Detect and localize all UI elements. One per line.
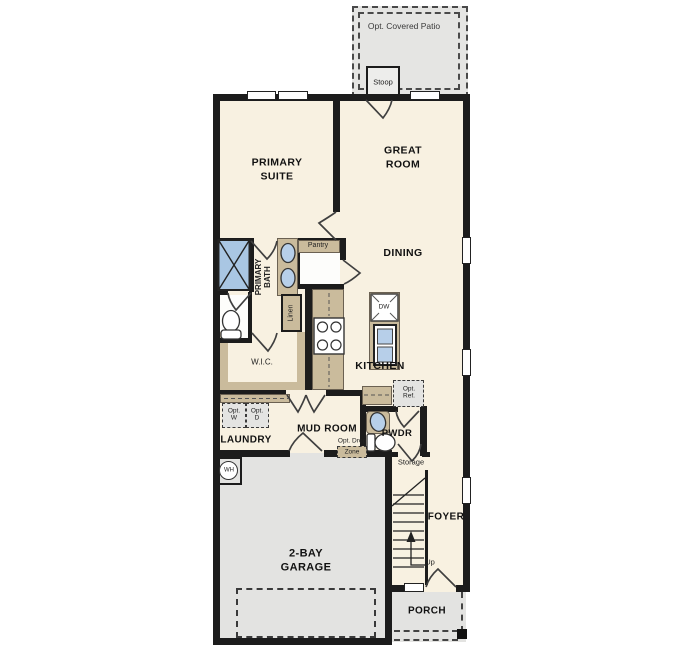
wic-label: W.I.C. [251,357,273,366]
opt-covered-patio-label: Opt. Covered Patio [368,22,440,32]
wall [425,470,428,585]
window [247,91,276,100]
porch-label: PORCH [408,605,446,618]
wall [456,585,470,592]
water-heater-label: WH [224,468,234,475]
pantry-label: Pantry [308,242,328,250]
porch-edge-right [461,592,463,632]
opt-drop-label: Opt. Drop [338,437,366,444]
great-room-label: GREAT ROOM [384,144,422,171]
storage-label: Storage [398,459,424,468]
opt-washer-label: Opt. W [228,408,240,423]
wall [422,452,430,457]
window [462,477,471,504]
pwdr-label: PWDR [382,428,413,440]
mud-room-label: MUD ROOM [297,423,357,436]
linen-label: Linen [288,304,295,321]
foyer-label: FOYER [428,511,464,524]
wall [216,290,228,295]
pantry-floor [298,253,340,284]
wall [366,452,398,457]
porch-edge-bottom-2 [394,639,458,641]
up-label: Up [425,559,435,568]
wall [248,292,252,338]
primary-suite-label: PRIMARY SUITE [252,156,303,183]
porch-edge-bottom-1 [394,630,458,632]
stoop-label: Stoop [373,79,393,88]
floor-plan: Opt. Covered Patio Stoop [0,0,687,661]
wall [216,338,252,343]
wall [213,450,290,457]
wall [213,238,251,244]
wall [213,94,220,645]
opt-drop-zone-label: Zone [345,448,360,455]
kitchen-label: KITCHEN [355,360,404,374]
window [404,583,424,592]
window [462,349,471,376]
wall [333,94,340,212]
bath-vanity-counter [277,238,298,296]
laundry-label: LAUNDRY [220,434,271,447]
porch-post [457,629,467,639]
opt-dryer-label: Opt. D [251,408,263,423]
wall [305,289,312,390]
kitchen-nook-counter [362,386,392,405]
garage-door-outline [236,588,376,638]
garage-label: 2-BAY GARAGE [281,547,332,576]
opt-ref-label: Opt. Ref. [403,386,415,401]
wall [385,450,392,645]
wall [420,406,427,456]
laundry-counter [220,394,290,403]
window [410,91,440,100]
wall [213,638,392,645]
dining-label: DINING [383,247,422,261]
wall [340,238,346,260]
kitchen-counter [312,289,344,390]
window [278,91,308,100]
primary-bath-label: PRIMARY BATH [254,259,272,296]
dishwasher-label: DW [379,303,390,310]
window [462,237,471,264]
